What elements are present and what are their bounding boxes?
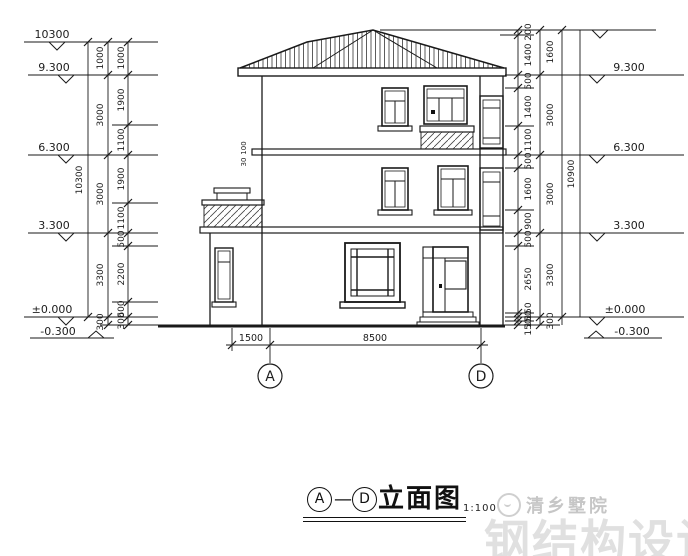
dim-right-detail-3: 1400	[524, 95, 534, 118]
bay-window-2f	[480, 168, 503, 230]
elevation-drawing: 10300 1000 3000 3000 3300 300 1000 1900 …	[0, 0, 688, 400]
dim-right-story-4: 300	[546, 312, 556, 329]
dim-bottom-1500: 1500	[239, 333, 263, 344]
window-3f-center	[378, 88, 412, 131]
dim-right-detail-12: 150	[524, 318, 534, 335]
dim-left-story-4: 300	[96, 313, 106, 330]
dims-right: 200 1400 500 1400 1100 500 1600 900 500 …	[524, 23, 577, 335]
drawing-title: A—D立面图	[303, 486, 466, 522]
level-left-minus0300: -0.300	[40, 325, 75, 338]
window-2f-center	[378, 168, 412, 215]
dim-left-story-0: 1000	[96, 46, 106, 69]
terrace-2f	[202, 188, 264, 227]
title-underline	[303, 517, 466, 522]
dim-right-detail-5: 500	[524, 152, 534, 169]
level-left-10300: 10300	[35, 28, 70, 41]
title-text: 立面图	[378, 486, 462, 512]
bay-window-3f	[480, 96, 503, 148]
grid-label-d: D	[476, 369, 487, 385]
level-right-6300: 6.300	[613, 141, 645, 154]
dim-left-detail-4: 1100	[117, 206, 127, 229]
balcony-3f	[420, 126, 474, 149]
dim-left-story-1: 3000	[96, 103, 106, 126]
brand-text: 清乡墅院	[526, 492, 610, 518]
dim-right-detail-7: 900	[524, 212, 534, 229]
dim-right-detail-1: 1400	[524, 43, 534, 66]
title-grid-end: D	[352, 487, 377, 512]
roof-fascia	[238, 68, 506, 76]
dim-left-detail-2: 1100	[117, 128, 127, 151]
level-left-9300: 9.300	[38, 61, 70, 74]
dim-left-detail-1: 1900	[117, 88, 127, 111]
level-left-0000: ±0.000	[32, 303, 73, 316]
dimension-lines	[80, 26, 580, 329]
dim-bottom-8500: 8500	[363, 333, 387, 344]
dim-slab-30: 30	[240, 158, 248, 167]
level-labels-right: 9.300 6.300 3.300 ±0.000 -0.300	[605, 61, 650, 338]
slab-3f	[252, 149, 506, 155]
window-1f-left	[212, 248, 236, 307]
window-3f-right	[424, 86, 467, 124]
title-grid-start: A	[307, 487, 332, 512]
dim-right-detail-8: 500	[524, 230, 534, 247]
level-right-3300: 3.300	[613, 219, 645, 232]
entry-steps	[417, 312, 479, 325]
level-left-6300: 6.300	[38, 141, 70, 154]
window-1f-center	[340, 243, 405, 308]
entry-door	[423, 247, 468, 312]
dim-left-total: 10300	[75, 165, 85, 194]
dims-left: 10300 1000 3000 3000 3300 300 1000 1900 …	[75, 46, 127, 330]
house	[158, 30, 506, 326]
level-right-9300: 9.300	[613, 61, 645, 74]
dim-right-story-2: 3000	[546, 182, 556, 205]
brand-logo-icon	[497, 493, 521, 517]
dim-left-story-2: 3000	[96, 182, 106, 205]
dim-left-story-3: 3300	[96, 263, 106, 286]
grid-label-a: A	[265, 369, 275, 385]
dim-left-detail-3: 1900	[117, 167, 127, 190]
window-2f-right	[434, 166, 472, 215]
watermark-brand: 清乡墅院	[497, 492, 610, 518]
dim-right-detail-0: 200	[524, 23, 534, 40]
dim-right-total: 10900	[567, 159, 577, 188]
level-markers-right	[578, 30, 684, 338]
dim-left-detail-0: 1000	[117, 46, 127, 69]
elevation-sheet: 10300 1000 3000 3000 3300 300 1000 1900 …	[0, 0, 688, 556]
level-left-3300: 3.300	[38, 219, 70, 232]
level-right-0000: ±0.000	[605, 303, 646, 316]
level-marker-right-top	[580, 30, 656, 38]
dim-right-story-3: 3300	[546, 263, 556, 286]
dim-left-detail-8: 300	[117, 312, 127, 329]
level-right-minus0300: -0.300	[614, 325, 649, 338]
dim-right-detail-9: 2650	[524, 267, 534, 290]
roof-tile-hatch	[240, 30, 504, 68]
dim-left-detail-6: 2200	[117, 262, 127, 285]
dim-right-story-1: 3000	[546, 103, 556, 126]
slab-2f	[200, 227, 503, 233]
dim-right-detail-2: 500	[524, 72, 534, 89]
title-separator: —	[334, 489, 350, 510]
dim-right-story-0: 1600	[546, 40, 556, 63]
dim-slab-100: 100	[240, 141, 248, 154]
dim-right-detail-6: 1600	[524, 177, 534, 200]
dim-right-detail-4: 1100	[524, 128, 534, 151]
level-markers-left	[24, 42, 158, 338]
